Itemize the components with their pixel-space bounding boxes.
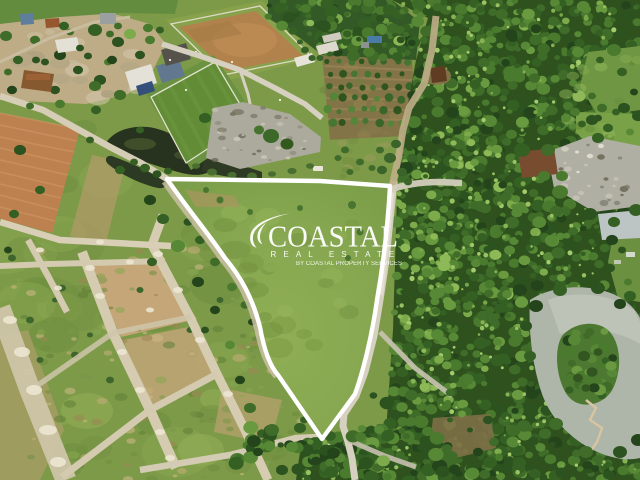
svg-text:BY COASTAL PROPERTY SERVICES: BY COASTAL PROPERTY SERVICES bbox=[296, 261, 402, 267]
svg-text:COASTAL: COASTAL bbox=[268, 219, 398, 254]
svg-text:REAL ESTATE: REAL ESTATE bbox=[271, 250, 402, 259]
